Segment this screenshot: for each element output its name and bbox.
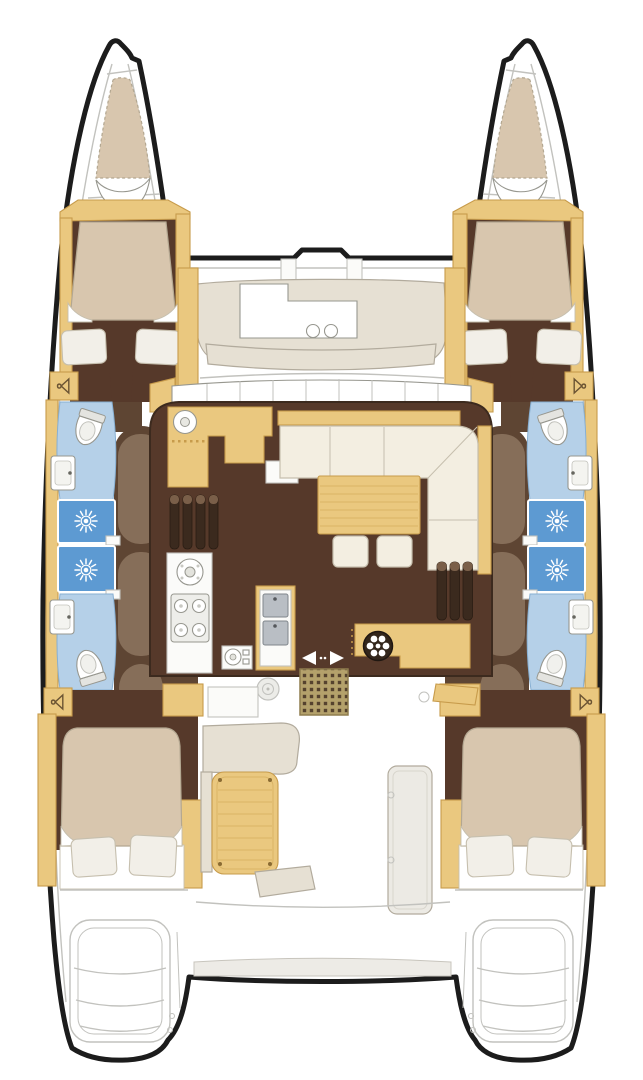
double-sink-island — [256, 586, 295, 670]
cockpit-table — [212, 772, 278, 874]
galley-stove-counter — [167, 553, 212, 673]
cockpit-module-starboard — [388, 766, 432, 914]
galley-round-basin — [177, 559, 203, 585]
galley-end-unit — [222, 646, 252, 669]
deck-fitting — [257, 678, 279, 700]
starboard-companionway-steps — [437, 562, 473, 620]
transom-bench — [194, 958, 451, 976]
saloon-table — [318, 476, 420, 534]
cockpit-bench-side — [201, 772, 212, 872]
companionway-mat — [300, 669, 348, 715]
catamaran-floorplan — [0, 0, 643, 1080]
deck-drain — [307, 325, 320, 338]
round-sink-icon — [174, 411, 197, 434]
sofa-side-shelf — [478, 426, 491, 574]
floorplan-svg — [0, 0, 643, 1080]
anchor-locker-lid — [347, 259, 362, 282]
ottoman — [333, 536, 368, 567]
saloon — [150, 402, 492, 705]
wet-bar-flap — [433, 684, 478, 705]
cockpit-bench-port — [203, 723, 299, 774]
coachroof-post-starboard — [445, 268, 465, 402]
anchor-locker-lid — [281, 259, 296, 282]
cockpit-locker — [208, 687, 258, 717]
deck-drain — [325, 325, 338, 338]
four-burner-icon — [171, 594, 209, 642]
coachroof-post-port — [178, 268, 198, 402]
ottoman — [377, 536, 412, 567]
sofa-back-shelf — [278, 411, 460, 425]
round-wheel-icon — [364, 632, 393, 661]
